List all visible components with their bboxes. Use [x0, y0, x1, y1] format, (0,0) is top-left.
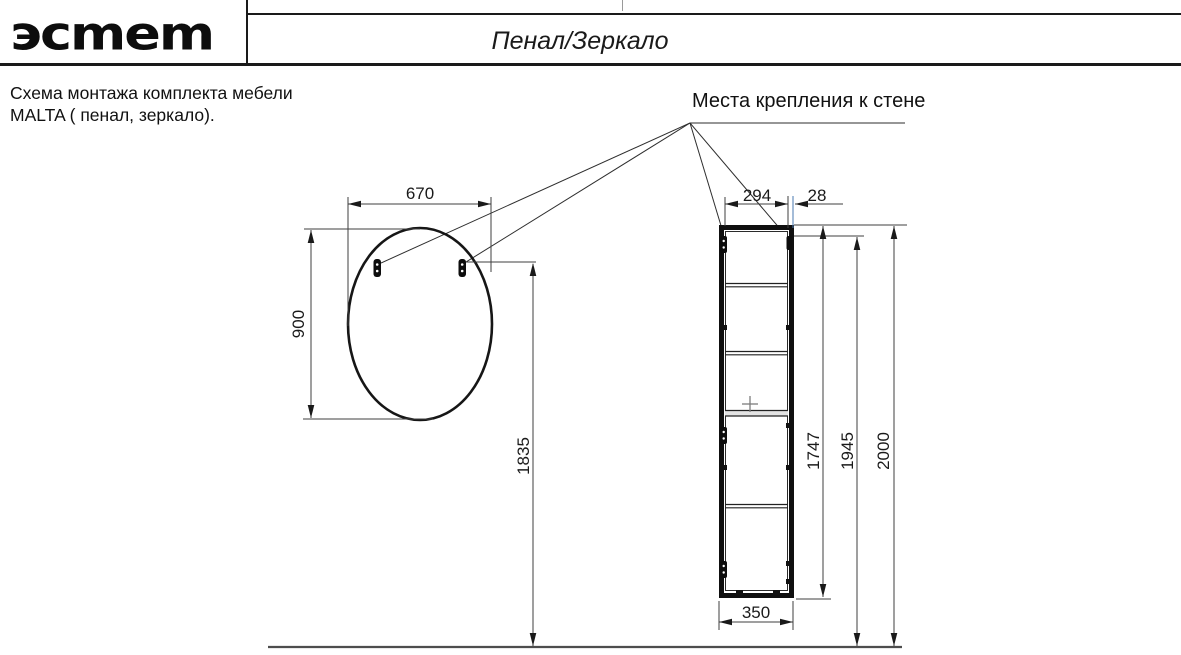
dim-label-cabinet-height: 1747	[804, 423, 824, 479]
dim-label-cabinet-width: 350	[726, 603, 786, 623]
dim-label-mirror-bracket-height: 1835	[514, 428, 534, 484]
mirror-outline	[348, 228, 492, 420]
dim-label-cabinet-edge-offset: 28	[797, 186, 837, 206]
mirror-mount-brackets	[374, 259, 467, 277]
dim-label-cabinet-bracket-from-floor: 1945	[838, 423, 858, 479]
dim-label-mirror-height: 900	[289, 299, 309, 349]
dim-label-cabinet-bracket-span: 294	[727, 186, 787, 206]
dim-label-cabinet-top-from-floor: 2000	[874, 423, 894, 479]
mounting-scheme-page: эсmem Пенал/Зеркало Схема монтажа компле…	[0, 0, 1181, 655]
dim-cabinet-height	[820, 226, 827, 597]
technical-drawing	[0, 0, 1181, 655]
dim-label-mirror-width: 670	[390, 184, 450, 204]
cabinet-extension-lines	[794, 225, 907, 599]
